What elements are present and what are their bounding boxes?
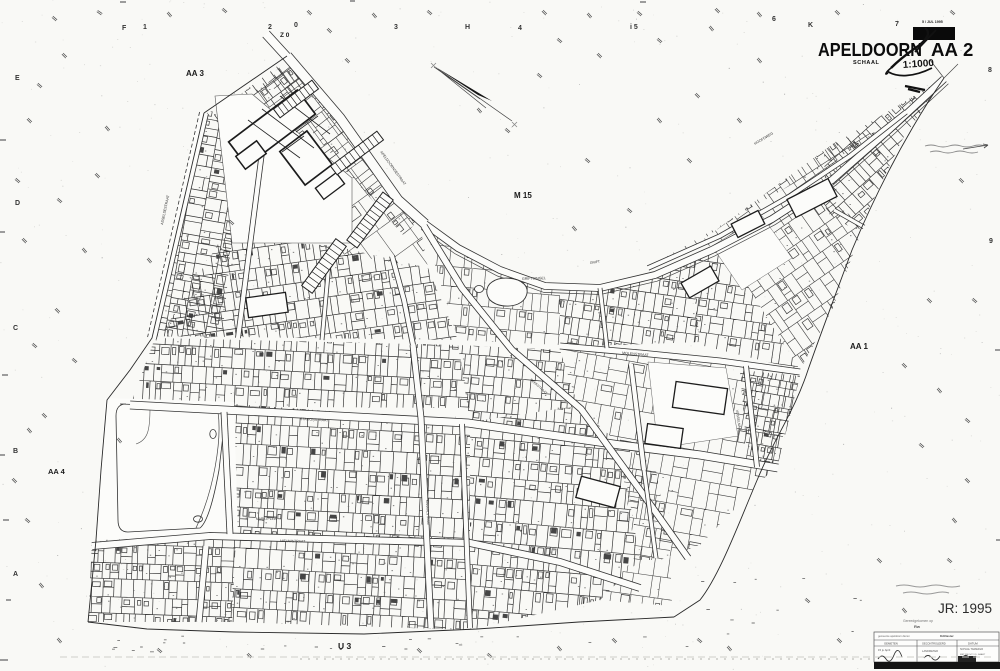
svg-text:F: F [122, 25, 127, 32]
svg-text:KADaster: KADaster [940, 634, 955, 638]
svg-text:i 5: i 5 [630, 24, 638, 31]
svg-text:E: E [15, 75, 20, 82]
svg-text:M 15: M 15 [514, 191, 532, 200]
svg-text:NIEUWSTRAAT: NIEUWSTRAAT [280, 539, 306, 543]
svg-text:APELDOORN: APELDOORN [818, 39, 922, 60]
svg-text:D: D [15, 200, 20, 207]
svg-text:0: 0 [294, 22, 298, 29]
svg-text:AA: AA [931, 39, 958, 60]
svg-text:2: 2 [963, 39, 973, 60]
svg-text:LANDMETER: LANDMETER [922, 649, 938, 653]
svg-text:Rw: Rw [914, 624, 921, 629]
svg-text:SCHAAL: SCHAAL [853, 60, 880, 66]
svg-text:H: H [465, 24, 470, 31]
svg-text:15 ju April: 15 ju April [878, 648, 891, 652]
svg-text:2: 2 [268, 24, 272, 31]
svg-text:gemeente apeldoorn dienst: gemeente apeldoorn dienst [878, 634, 910, 638]
svg-text:AA 1: AA 1 [850, 342, 868, 351]
svg-text:GEMETEN: GEMETEN [884, 642, 898, 646]
svg-text:K: K [808, 22, 813, 29]
svg-text:C: C [13, 325, 18, 332]
svg-text:MARKTPLEIN: MARKTPLEIN [256, 517, 278, 521]
svg-text:7: 7 [895, 21, 899, 28]
svg-text:6: 6 [772, 16, 776, 23]
svg-text:3: 3 [394, 24, 398, 31]
svg-text:DATUM: DATUM [968, 642, 978, 646]
svg-text:B: B [13, 448, 18, 455]
svg-text:1: 1 [143, 24, 147, 31]
svg-text:GECONTROLEERD: GECONTROLEERD [922, 642, 946, 646]
svg-text:Z 0: Z 0 [280, 32, 290, 39]
svg-text:MET RECHT V.D. KAART: MET RECHT V.D. KAART [960, 653, 986, 656]
svg-text:AA 3: AA 3 [186, 69, 204, 78]
svg-text:A: A [13, 571, 18, 578]
svg-text:9: 9 [989, 238, 993, 245]
svg-text:AA 4: AA 4 [48, 467, 66, 476]
svg-text:JR: 1995: JR: 1995 [938, 601, 992, 616]
svg-text:GRIFTSINGEL: GRIFTSINGEL [522, 276, 546, 281]
svg-text:U 3: U 3 [338, 641, 352, 651]
svg-text:4: 4 [518, 25, 522, 32]
svg-text:8: 8 [988, 67, 992, 74]
svg-text:5 / JUL 1995: 5 / JUL 1995 [922, 20, 943, 24]
svg-text:Gereedgekomen op: Gereedgekomen op [903, 619, 933, 623]
svg-text:SCHAAL TARIEFGR: SCHAAL TARIEFGR [960, 648, 983, 651]
